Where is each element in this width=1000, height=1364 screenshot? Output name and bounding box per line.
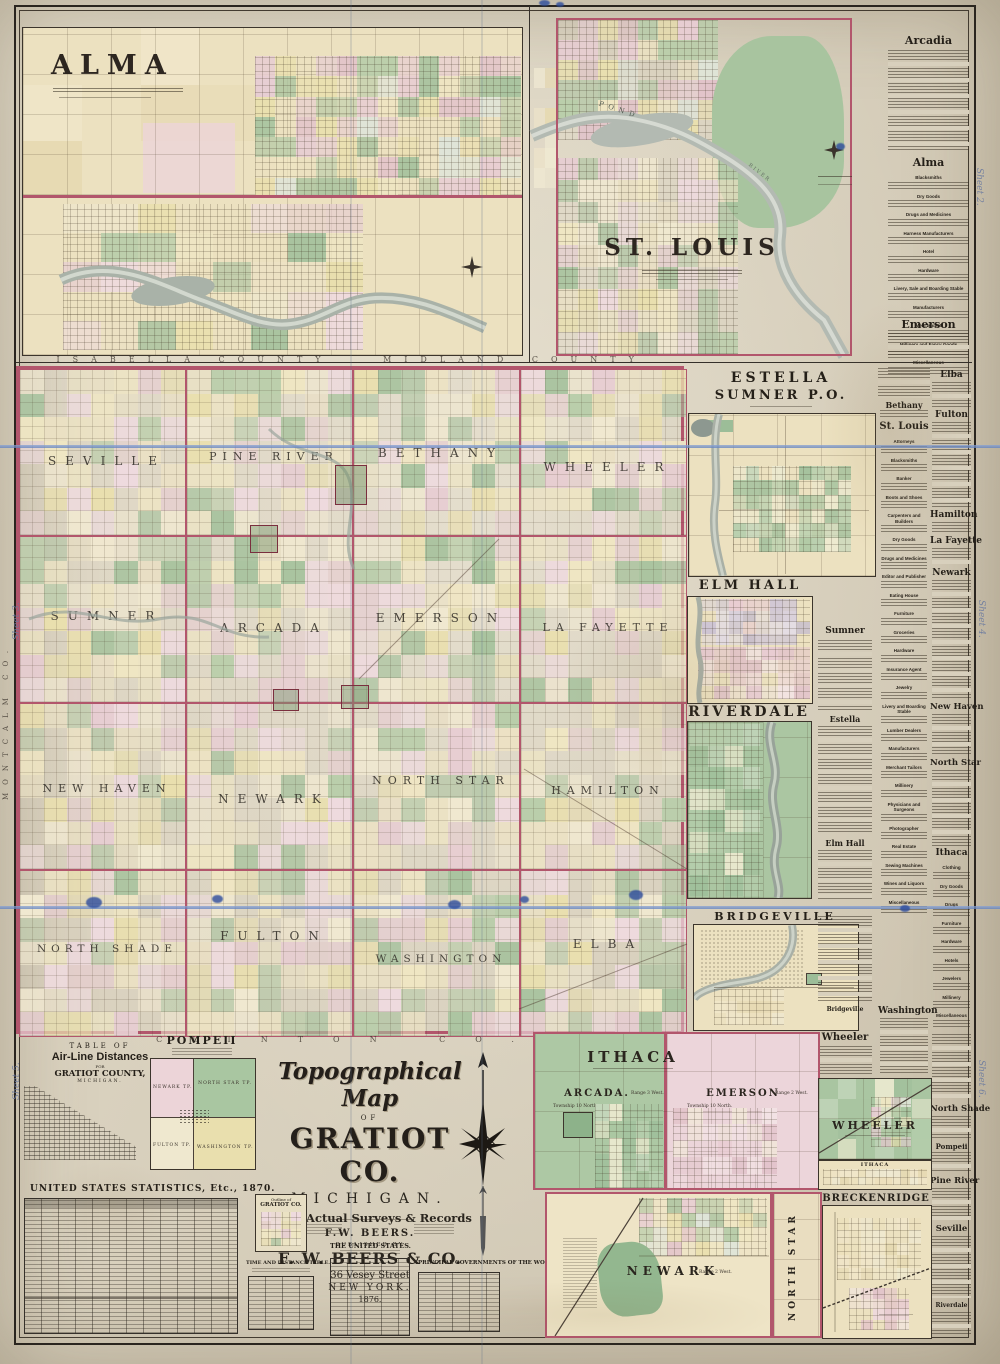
- ink-blot: [212, 895, 223, 903]
- directory-header-arcadia: Arcadia: [884, 34, 973, 47]
- map-title-county: GRATIOT CO.: [258, 1122, 482, 1188]
- directory-section: Editor and Publisher: [881, 574, 927, 590]
- inset-wheeler: WHEELER: [818, 1078, 932, 1160]
- time-distance-table: [248, 1276, 314, 1330]
- alma-subtitle-text: [53, 88, 183, 92]
- directory-entries-seville: [932, 1236, 971, 1298]
- pompeii-quadrant-ne: NORTH STAR TP.: [197, 1081, 253, 1086]
- directory-section: Livery and Boarding Stable: [881, 704, 927, 725]
- united-states-title: THE UNITED STATES.: [330, 1242, 410, 1250]
- alma-compass-icon: [461, 256, 483, 278]
- directory-section: Furniture: [933, 921, 970, 937]
- outline-legend: Outline of GRATIOT CO.: [255, 1194, 307, 1252]
- elm-hall-title: ELM HALL: [686, 578, 814, 593]
- breckenridge-title: BRECKENRIDGE: [820, 1193, 932, 1204]
- directory-section: Livery, Sale and Boarding Stable: [888, 286, 969, 302]
- st-louis-title: ST. LOUIS: [592, 234, 792, 261]
- world-governments-title: PRINCIPAL GOVERNMENTS OF THE WORLD.: [418, 1260, 502, 1266]
- alma-river: [23, 218, 522, 355]
- directory-section: Sewing Machines: [881, 863, 927, 879]
- directory-entries-sumner: [818, 640, 872, 712]
- st-louis-scalebar: [818, 176, 852, 179]
- directory-section: Hotels: [933, 958, 970, 974]
- directory-entries-arcadia: [888, 50, 969, 152]
- directory-section: Jewelry: [881, 685, 927, 701]
- ithaca-arcada-range: Range 3 West.: [631, 1091, 664, 1096]
- directory-entries-ithaca-cont: [932, 1034, 971, 1100]
- directory-section: Merchant Tailors: [881, 765, 927, 781]
- st-louis-red-border: [556, 18, 852, 356]
- directory-section: Wines and Liquors: [881, 881, 927, 897]
- directory-section: Drugs: [933, 902, 970, 918]
- directory-entries-washington: [880, 1018, 928, 1074]
- inset-breckenridge: [822, 1205, 932, 1339]
- fold-line-2: [0, 906, 1000, 909]
- compass-rose-icon: [453, 1048, 513, 1260]
- ithaca-subtitle-text: [593, 1068, 673, 1071]
- directory-section: Millinery: [881, 783, 927, 799]
- divider-vertical: [529, 6, 530, 362]
- directory-entries-newark: [932, 580, 971, 698]
- directory-header-north-star: North Star: [930, 758, 973, 768]
- directory-entries-pine-river: [932, 1188, 971, 1220]
- directory-header-bridgeville: Bridgeville: [816, 1006, 874, 1013]
- directory-section: Dry Goods: [888, 194, 969, 210]
- paper-stain: [560, 600, 780, 780]
- directory-header-wheeler: Wheeler: [816, 1032, 874, 1043]
- directory-section: Miscellaneous: [933, 1013, 970, 1029]
- directory-header-pine-river: Pine River: [930, 1176, 973, 1186]
- time-distance-title: TIME AND DISTANCE TABLE.: [246, 1260, 316, 1266]
- directory-section: Furniture: [881, 611, 927, 627]
- wheeler-label: WHEELER: [821, 1119, 929, 1132]
- directory-entries-north-shade: [932, 1116, 971, 1138]
- directory-section: Photographer: [881, 826, 927, 842]
- inset-ithaca: ITHACA ARCADA. Township 10 North. Range …: [533, 1032, 820, 1190]
- ithaca-strip-label: ITHACA: [821, 1162, 929, 1168]
- title-credit-engraved: [414, 1224, 454, 1234]
- directory-entries-elm-hall: [818, 850, 872, 900]
- ithaca-arcada-label: ARCADA.: [551, 1088, 643, 1099]
- inset-pompeii: NEWARK TP. NORTH STAR TP. FULTON TP. WAS…: [150, 1058, 256, 1170]
- directory-section: Drugs and Medicines: [888, 212, 969, 228]
- map-sheet: ALMA POND RIVER ST. LOUIS Arcadia: [0, 0, 1000, 1364]
- ithaca-cemetery: [563, 1112, 593, 1138]
- margin-note: Sheet 2.: [974, 168, 984, 206]
- pompeii-village-dots: [179, 1109, 209, 1123]
- directory-header-newark: Newark: [930, 568, 973, 578]
- directory-entries-la-fayette: [932, 548, 971, 566]
- alma-title: ALMA: [51, 50, 174, 81]
- pompeii-quadrant-nw: NEWARK TP.: [153, 1085, 191, 1090]
- map-title-of: OF: [258, 1114, 482, 1122]
- crease-vertical-2: [481, 0, 483, 1364]
- directory-section: Hardware: [881, 648, 927, 664]
- map-title-script: Topographical Map: [258, 1058, 482, 1112]
- airline-title-2: Air-Line Distances: [40, 1051, 160, 1063]
- airline-title-5: MICHIGAN.: [48, 1079, 152, 1084]
- airline-title-4: GRATIOT COUNTY,: [44, 1069, 156, 1079]
- county-label-montcalm: MONTCALM CO.: [2, 560, 10, 800]
- inset-st-louis: POND RIVER ST. LOUIS: [532, 8, 877, 360]
- pompeii-quadrant-sw: FULTON TP.: [153, 1143, 191, 1148]
- alma-scale-text: [59, 97, 151, 100]
- st-louis-scale-text: [656, 279, 728, 282]
- directory-section: Harness Manufacturers: [888, 231, 969, 247]
- crease-vertical-1: [350, 0, 352, 1364]
- pompeii-quadrant-se: WASHINGTON TP.: [197, 1145, 253, 1150]
- directory-header-north-shade: North Shade: [930, 1104, 973, 1114]
- directory-entries-pompeii: [932, 1152, 971, 1172]
- directory-header-alma: Alma: [884, 156, 973, 169]
- directory-section: Groceries: [881, 630, 927, 646]
- directory-sections-ithaca: ClothingDry GoodsDrugsFurnitureHardwareH…: [931, 862, 972, 1030]
- directory-section: Millinery: [933, 995, 970, 1011]
- wheeler-subtitle-text: [845, 1135, 905, 1138]
- margin-note: Sheet 4.: [976, 600, 986, 638]
- alma-red-line: [23, 195, 522, 198]
- newark-range: Range 2 West.: [699, 1270, 732, 1275]
- united-states-table: [330, 1258, 410, 1336]
- directory-header-sumner: Sumner: [816, 626, 874, 636]
- directory-header-washington: Washington: [878, 1006, 930, 1016]
- north-star-strip-label: NORTH STAR: [788, 1204, 798, 1330]
- map-parcel: [534, 68, 545, 88]
- directory-section: Manufacturers: [881, 746, 927, 762]
- directory-entries-misc: [818, 916, 872, 1002]
- directory-header-seville: Seville: [930, 1224, 973, 1234]
- airline-title-1: TABLE OF: [48, 1042, 152, 1050]
- village-box-ithaca: [273, 689, 299, 711]
- directory-section: Physicians and Surgeons: [881, 802, 927, 823]
- inset-alma: ALMA: [22, 27, 523, 356]
- margin-note: Sheet 3.: [12, 602, 22, 640]
- village-box-ithaca-2: [341, 685, 369, 709]
- directory-header-la-fayette: La Fayette: [930, 536, 973, 546]
- directory-section: Lumber Dealers: [881, 728, 927, 744]
- time-distance-sub: [252, 1268, 310, 1272]
- ink-blot: [629, 890, 643, 900]
- directory-header-pompeii: Pompeii: [930, 1142, 973, 1151]
- pompeii-title: POMPEII: [160, 1034, 244, 1047]
- st-louis-scalebar2: [818, 184, 852, 186]
- ithaca-title: ITHACA: [553, 1048, 713, 1066]
- ink-blot: [556, 2, 564, 7]
- united-states-sub: [340, 1250, 400, 1254]
- directory-header-new-haven: New Haven: [930, 702, 973, 712]
- ink-blot: [520, 896, 529, 903]
- ink-blot: [448, 900, 461, 909]
- directory-section: Eating House: [881, 593, 927, 609]
- county-label-isabella: ISABELLA COUNTY: [45, 355, 345, 364]
- directory-section: Hardware: [888, 268, 969, 284]
- directory-entries-new-haven: [932, 714, 971, 756]
- ink-blot: [900, 905, 910, 912]
- directory-header-estella: Estella: [816, 714, 874, 724]
- ink-blot: [836, 143, 845, 150]
- directory-entries-estella: [818, 726, 872, 834]
- paper-stain: [40, 1160, 180, 1250]
- ithaca-arcada-twp: Township 10 North.: [553, 1104, 598, 1109]
- directory-section: Blacksmiths: [888, 175, 969, 191]
- margin-note: Sheet 6.: [976, 1060, 986, 1098]
- directory-section: Dry Goods: [933, 884, 970, 900]
- directory-header-ithaca: Ithaca: [930, 848, 973, 858]
- margin-note: Sheet 5.: [12, 1062, 22, 1100]
- county-label-midland: MIDLAND COUNTY: [365, 355, 665, 364]
- directory-header-elm-hall: Elm Hall: [816, 838, 874, 848]
- village-box-alma: [250, 525, 278, 553]
- directory-entries-wheeler: [818, 1046, 872, 1074]
- st-louis-subtitle-text: [642, 270, 742, 274]
- directory-section: Clothing: [933, 865, 970, 881]
- pompeii-subtitle-text: [172, 1048, 232, 1055]
- paper-stain: [420, 1280, 780, 1350]
- inset-ithaca-strip: ITHACA: [818, 1160, 932, 1190]
- legend-title-2: GRATIOT CO.: [256, 1202, 306, 1208]
- directory-entries-north-star: [932, 770, 971, 846]
- title-scale-text: [330, 1219, 410, 1222]
- estella-river: [689, 414, 749, 576]
- directory-section: Hardware: [933, 939, 970, 955]
- breckenridge-railroad: [823, 1206, 931, 1338]
- estella-subtitle-text: [750, 406, 812, 409]
- title-credit-drawn: [302, 1224, 342, 1234]
- directory-entries-riverdale: [932, 1312, 971, 1336]
- ink-blot: [539, 0, 550, 6]
- map-parcel: [545, 68, 556, 88]
- directory-section: Insurance Agent: [881, 667, 927, 683]
- directory-section: Jewelers: [933, 976, 970, 992]
- breckenridge-road-label-text: [879, 1314, 913, 1317]
- directory-section: Hotel: [888, 249, 969, 265]
- ithaca-emerson-range: Range 2 West.: [775, 1091, 808, 1096]
- directory-section: Real Estate: [881, 844, 927, 860]
- paper-stain: [820, 300, 960, 560]
- directory-header-riverdale: Riverdale: [930, 1302, 973, 1309]
- ink-blot: [86, 897, 102, 908]
